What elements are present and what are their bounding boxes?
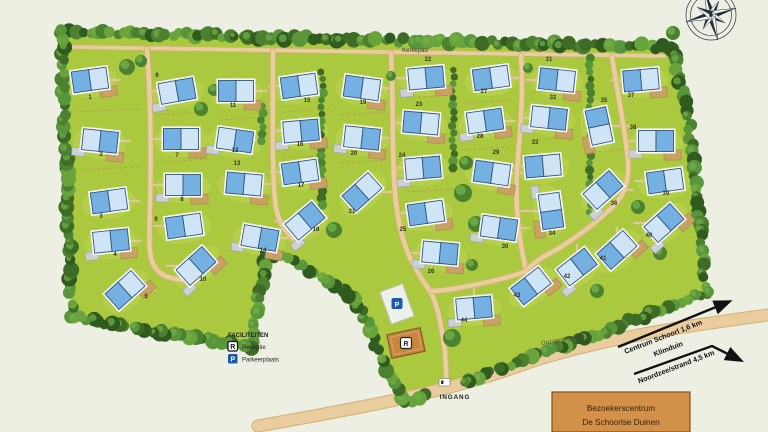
house-number: 42 bbox=[564, 274, 571, 280]
house-number: 19 bbox=[360, 100, 367, 106]
vis极itor-center-line2: De Schoorlse Duinen bbox=[582, 418, 660, 427]
house-number: 38 bbox=[630, 125, 637, 131]
house-number: 16 bbox=[297, 142, 304, 148]
visitor-center-box: Bezoekerscentrum De Schoorlse Duinen bbox=[552, 392, 690, 432]
house-number: 27 bbox=[481, 89, 488, 95]
house-number: 31 bbox=[546, 57, 553, 63]
house-number: 44 bbox=[461, 318, 468, 324]
entrance-gate-icon bbox=[439, 379, 450, 387]
svg-text:P: P bbox=[230, 357, 235, 364]
house-number: 15 bbox=[304, 98, 311, 104]
house-number: 14 bbox=[260, 248, 267, 254]
house-number: 20 bbox=[351, 151, 358, 157]
house-number: 17 bbox=[298, 183, 305, 189]
house-number: 13 bbox=[234, 161, 241, 167]
park-map: 1234567891011121314151617181920212223242… bbox=[0, 0, 768, 432]
house-number: 26 bbox=[428, 269, 435, 275]
reception-icon: R bbox=[401, 338, 412, 349]
kerkepad-label: Kerkepad bbox=[402, 48, 428, 54]
svg-text:R: R bbox=[230, 344, 235, 351]
house-number: 28 bbox=[477, 134, 484, 140]
visitor-center-line1: Bezoekerscentrum bbox=[587, 404, 655, 413]
house-number: 24 bbox=[399, 153, 406, 159]
house-number: 18 bbox=[313, 227, 320, 233]
house-number: 25 bbox=[400, 227, 407, 233]
legend-title: FACILITEITEN bbox=[228, 333, 268, 339]
house-number: 36 bbox=[611, 201, 618, 207]
svg-text:R: R bbox=[403, 341, 408, 348]
entrance-label: INGANG bbox=[440, 394, 471, 401]
house-number: 35 bbox=[601, 98, 608, 104]
house-number: 39 bbox=[663, 191, 670, 197]
house-number: 32 bbox=[550, 95, 557, 101]
house-number: 11 bbox=[230, 103, 237, 109]
svg-text:P: P bbox=[395, 302, 400, 309]
house-number: 22 bbox=[425, 57, 432, 63]
house-33 bbox=[522, 152, 563, 180]
park-map-page: 1234567891011121314151617181920212223242… bbox=[0, 0, 768, 432]
reception-legend-label: Receptie bbox=[242, 345, 266, 351]
house-number: 30 bbox=[502, 244, 509, 250]
house-number: 34 bbox=[549, 231, 556, 237]
parking-legend-label: Parkeerplaats bbox=[242, 358, 279, 364]
house-number: 37 bbox=[628, 93, 635, 99]
house-number: 40 bbox=[646, 233, 653, 239]
house-number: 29 bbox=[493, 150, 500, 156]
parking-icon: P bbox=[392, 298, 403, 309]
house-number: 43 bbox=[514, 293, 521, 299]
house-number: 21 bbox=[349, 209, 356, 215]
house-number: 41 bbox=[600, 256, 607, 262]
house-number: 33 bbox=[532, 140, 539, 146]
house-number: 23 bbox=[416, 102, 423, 108]
house-number: 12 bbox=[232, 148, 239, 154]
house-number: 10 bbox=[200, 277, 207, 283]
